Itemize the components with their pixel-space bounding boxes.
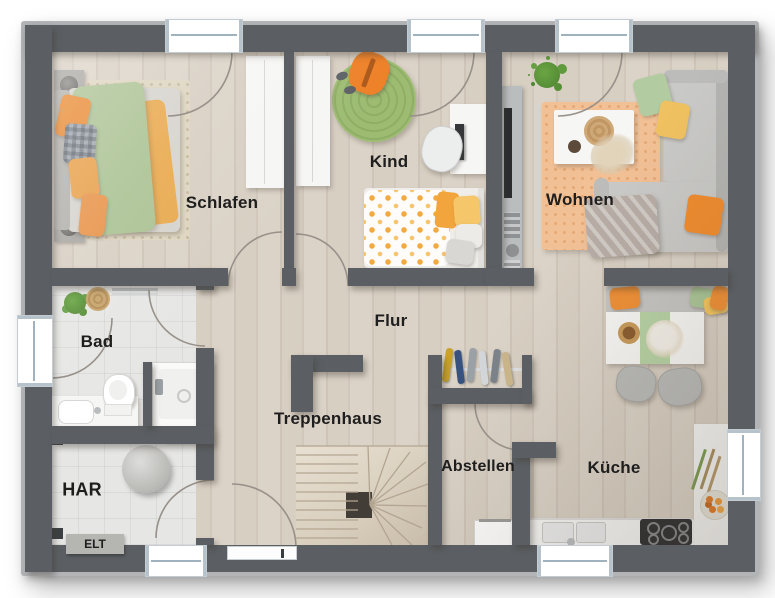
floor-plan: ELT Schlafen Kind Wohnen Bad Flur Treppe…: [0, 0, 775, 598]
wall-wohnen-essplatz: [604, 268, 728, 286]
exterior-wall-top: [25, 25, 755, 52]
exterior-wall-bottom: [25, 545, 755, 572]
wall-bad-right: [196, 348, 214, 480]
door-arc-kind: [296, 234, 348, 286]
wall-kind-wohnen: [486, 52, 502, 268]
wall-garderobe-right: [522, 355, 532, 404]
label-kueche: Küche: [588, 458, 641, 478]
door-arc-har: [156, 480, 214, 538]
window-kueche: [538, 546, 612, 576]
wall-stub-wohnen: [486, 268, 534, 286]
wall-garderobe-abstellen: [428, 388, 530, 404]
exterior-wall-left: [25, 25, 52, 572]
wall-schlafen-bad: [52, 268, 228, 286]
door-handle: [281, 549, 284, 558]
wall-kueche-stub: [512, 442, 556, 458]
label-bad: Bad: [81, 332, 114, 352]
label-flur: Flur: [375, 311, 408, 331]
wall-treppenhaus-abstellen: [428, 355, 442, 545]
wall-schlafen-kind: [284, 52, 294, 268]
plan-linework: [0, 0, 775, 598]
wall-shower-divider: [143, 362, 152, 426]
label-abstellen: Abstellen: [441, 458, 515, 476]
wall-flur-top: [282, 268, 296, 286]
door-arc-entrance: [232, 484, 296, 547]
wall-kind-flur: [348, 268, 486, 286]
window-bad: [18, 316, 52, 386]
window-wohnen: [556, 20, 632, 52]
window-kueche-right: [728, 430, 760, 500]
stair-treads: [296, 446, 428, 545]
wall-treppenhaus-stub: [291, 355, 313, 412]
window-schlafen: [166, 20, 242, 52]
window-arc: [558, 52, 622, 116]
elt-label: ELT: [84, 537, 106, 551]
electrical-panel: ELT: [66, 534, 124, 554]
window-arc: [168, 52, 232, 116]
label-treppenhaus: Treppenhaus: [274, 409, 382, 429]
entrance-door: [228, 547, 296, 559]
wall-har-right: [196, 538, 214, 545]
wall-bad-har: [52, 426, 214, 444]
door-arc-schlafen: [228, 232, 282, 286]
window-har: [146, 546, 206, 576]
door-arc-bad: [149, 290, 205, 346]
label-wohnen: Wohnen: [546, 190, 614, 210]
label-har: HAR: [62, 480, 102, 501]
label-kind: Kind: [370, 152, 409, 172]
window-arc: [410, 52, 474, 116]
label-schlafen: Schlafen: [186, 193, 258, 213]
window-kind: [408, 20, 484, 52]
